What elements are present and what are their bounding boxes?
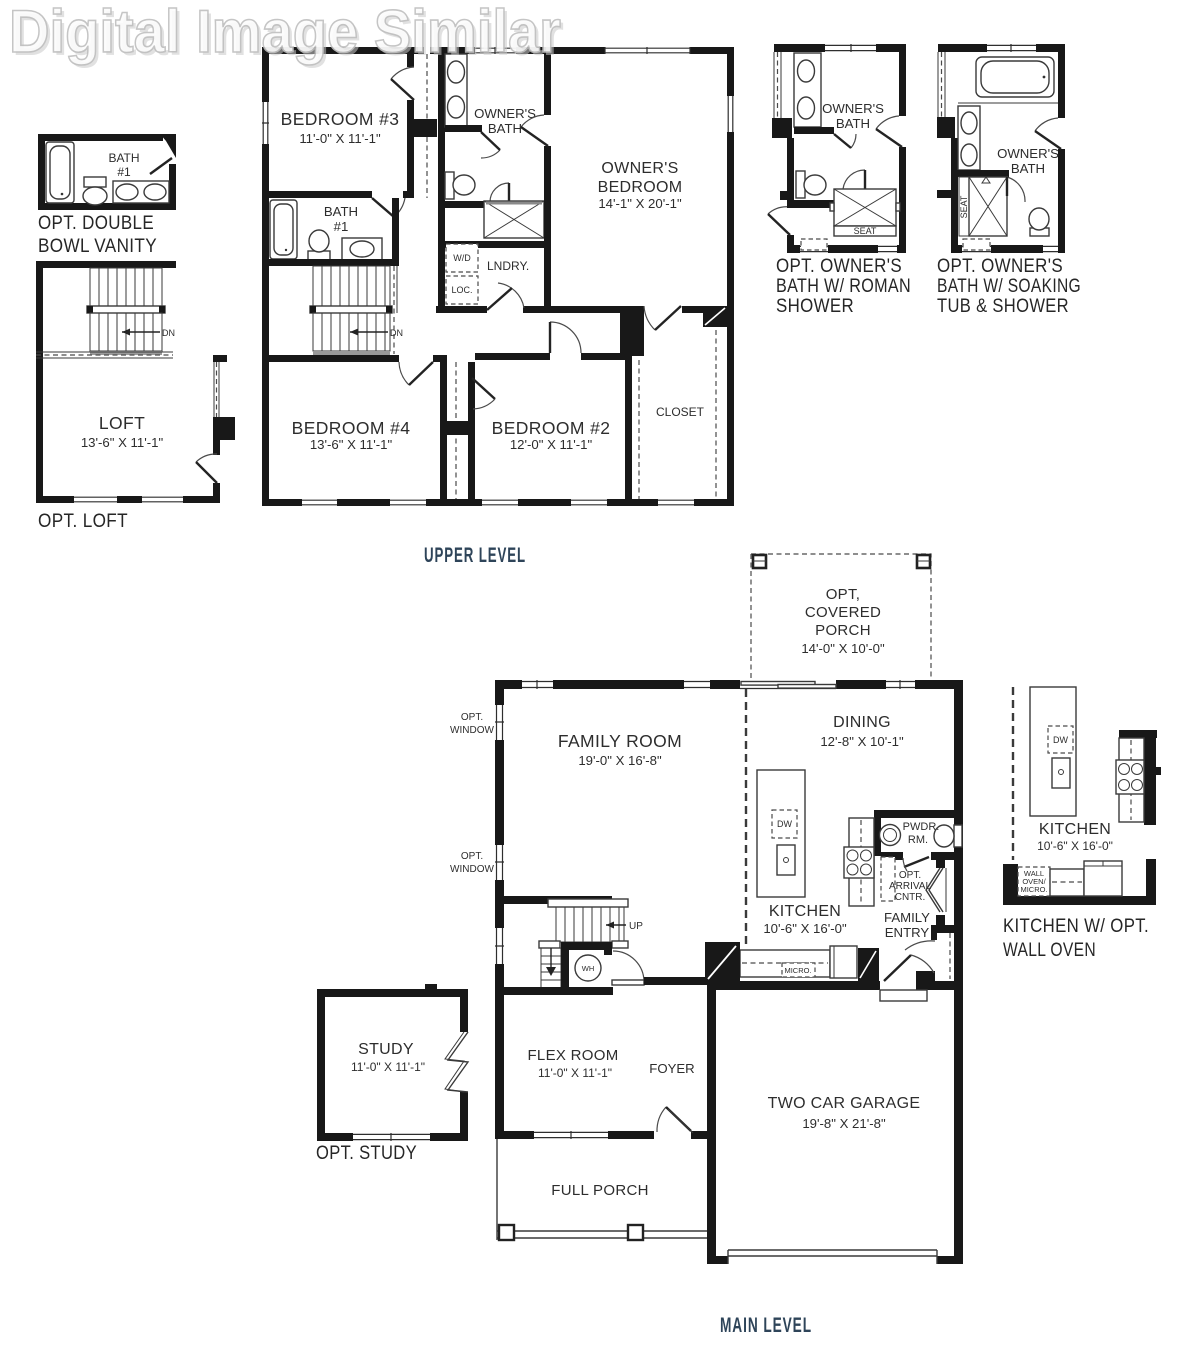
svg-text:OPT.: OPT. xyxy=(461,712,483,723)
svg-text:DW: DW xyxy=(1053,735,1068,745)
svg-text:LOFT: LOFT xyxy=(99,413,145,433)
svg-text:DINING: DINING xyxy=(833,714,891,731)
svg-text:COVERED: COVERED xyxy=(805,604,881,621)
svg-text:WINDOW: WINDOW xyxy=(450,864,494,875)
svg-text:TUB & SHOWER: TUB & SHOWER xyxy=(937,295,1069,317)
svg-text:#1: #1 xyxy=(334,219,349,234)
svg-text:ARRIVAL: ARRIVAL xyxy=(889,881,931,892)
svg-text:CLOSET: CLOSET xyxy=(656,405,705,419)
svg-text:PORCH: PORCH xyxy=(815,622,871,639)
svg-text:BOWL VANITY: BOWL VANITY xyxy=(38,235,157,257)
svg-text:BATH: BATH xyxy=(324,204,358,219)
svg-text:13'-6" X 11'-1": 13'-6" X 11'-1" xyxy=(310,437,393,452)
svg-text:11'-0" X 11'-1": 11'-0" X 11'-1" xyxy=(351,1060,425,1074)
svg-text:LOC.: LOC. xyxy=(451,285,472,295)
svg-text:DN: DN xyxy=(390,328,403,338)
svg-text:Digital Image Similar: Digital Image Similar xyxy=(9,0,561,65)
svg-text:MICRO.: MICRO. xyxy=(1020,885,1047,894)
svg-text:KITCHEN: KITCHEN xyxy=(769,903,841,920)
svg-text:12'-8" X 10'-1": 12'-8" X 10'-1" xyxy=(820,734,904,749)
svg-text:PWDR.: PWDR. xyxy=(903,821,940,833)
svg-text:11'-0" X 11'-1": 11'-0" X 11'-1" xyxy=(299,131,381,146)
svg-text:FAMILY: FAMILY xyxy=(884,910,930,925)
svg-text:OWNER'S: OWNER'S xyxy=(822,101,884,116)
svg-text:RM.: RM. xyxy=(908,834,928,846)
svg-text:OPT. OWNER'S: OPT. OWNER'S xyxy=(776,255,902,277)
svg-text:BEDROOM #2: BEDROOM #2 xyxy=(492,418,611,438)
svg-text:W/D: W/D xyxy=(453,253,471,263)
svg-text:BEDROOM #3: BEDROOM #3 xyxy=(281,109,400,129)
svg-text:BATH: BATH xyxy=(488,121,522,136)
svg-text:11'-0" X 11'-1": 11'-0" X 11'-1" xyxy=(538,1066,612,1080)
svg-text:FOYER: FOYER xyxy=(649,1061,694,1076)
svg-text:SEAT: SEAT xyxy=(959,195,969,218)
svg-text:OPT.: OPT. xyxy=(461,851,483,862)
svg-text:OPT,: OPT, xyxy=(826,586,861,603)
svg-text:WALL OVEN: WALL OVEN xyxy=(1003,939,1096,961)
svg-text:OWNER'S: OWNER'S xyxy=(601,160,678,177)
svg-text:BEDROOM #4: BEDROOM #4 xyxy=(292,418,411,438)
svg-text:SHOWER: SHOWER xyxy=(776,295,854,317)
svg-text:DW: DW xyxy=(777,819,792,829)
svg-text:BEDROOM: BEDROOM xyxy=(598,179,683,196)
svg-text:MAIN LEVEL: MAIN LEVEL xyxy=(720,1314,812,1337)
svg-text:TWO CAR GARAGE: TWO CAR GARAGE xyxy=(768,1095,921,1112)
svg-text:FLEX ROOM: FLEX ROOM xyxy=(527,1047,618,1064)
svg-text:BATH W/ ROMAN: BATH W/ ROMAN xyxy=(776,275,911,297)
svg-text:OPT.: OPT. xyxy=(899,870,921,881)
svg-text:ENTRY: ENTRY xyxy=(885,925,930,940)
svg-text:LNDRY.: LNDRY. xyxy=(487,259,529,273)
svg-text:#1: #1 xyxy=(117,165,131,179)
svg-text:BATH: BATH xyxy=(1011,161,1045,176)
svg-text:FULL PORCH: FULL PORCH xyxy=(551,1182,648,1199)
svg-text:WINDOW: WINDOW xyxy=(450,725,494,736)
svg-text:10'-6" X 16'-0": 10'-6" X 16'-0" xyxy=(763,921,847,936)
svg-text:DN: DN xyxy=(162,328,175,338)
svg-text:OPT. OWNER'S: OPT. OWNER'S xyxy=(937,255,1063,277)
svg-text:FAMILY ROOM: FAMILY ROOM xyxy=(558,731,682,751)
svg-text:19'-8" X 21'-8": 19'-8" X 21'-8" xyxy=(802,1116,886,1131)
svg-text:OWNER'S: OWNER'S xyxy=(997,146,1059,161)
svg-text:BATH: BATH xyxy=(108,151,139,165)
svg-text:BATH W/ SOAKING: BATH W/ SOAKING xyxy=(937,275,1081,297)
svg-text:UP: UP xyxy=(629,921,643,932)
svg-text:13'-6" X 11'-1": 13'-6" X 11'-1" xyxy=(81,435,164,450)
svg-text:SEAT: SEAT xyxy=(854,226,877,236)
svg-text:STUDY: STUDY xyxy=(358,1041,414,1058)
svg-text:OWNER'S: OWNER'S xyxy=(474,106,536,121)
svg-text:CNTR.: CNTR. xyxy=(895,892,926,903)
svg-text:14'-1" X 20'-1": 14'-1" X 20'-1" xyxy=(598,196,682,211)
svg-text:19'-0" X 16'-8": 19'-0" X 16'-8" xyxy=(578,753,662,768)
svg-text:12'-0" X 11'-1": 12'-0" X 11'-1" xyxy=(510,437,593,452)
svg-text:KITCHEN W/ OPT.: KITCHEN W/ OPT. xyxy=(1003,915,1149,937)
svg-text:OPT. DOUBLE: OPT. DOUBLE xyxy=(38,212,154,234)
svg-text:KITCHEN: KITCHEN xyxy=(1039,821,1111,838)
svg-text:14'-0" X 10'-0": 14'-0" X 10'-0" xyxy=(801,641,885,656)
svg-text:WH: WH xyxy=(582,964,595,973)
svg-text:UPPER LEVEL: UPPER LEVEL xyxy=(424,544,526,567)
svg-text:10'-6" X 16'-0": 10'-6" X 16'-0" xyxy=(1037,839,1113,853)
svg-text:OPT. STUDY: OPT. STUDY xyxy=(316,1142,417,1164)
svg-text:OPT. LOFT: OPT. LOFT xyxy=(38,510,128,532)
svg-text:MICRO.: MICRO. xyxy=(784,966,811,975)
svg-text:BATH: BATH xyxy=(836,116,870,131)
